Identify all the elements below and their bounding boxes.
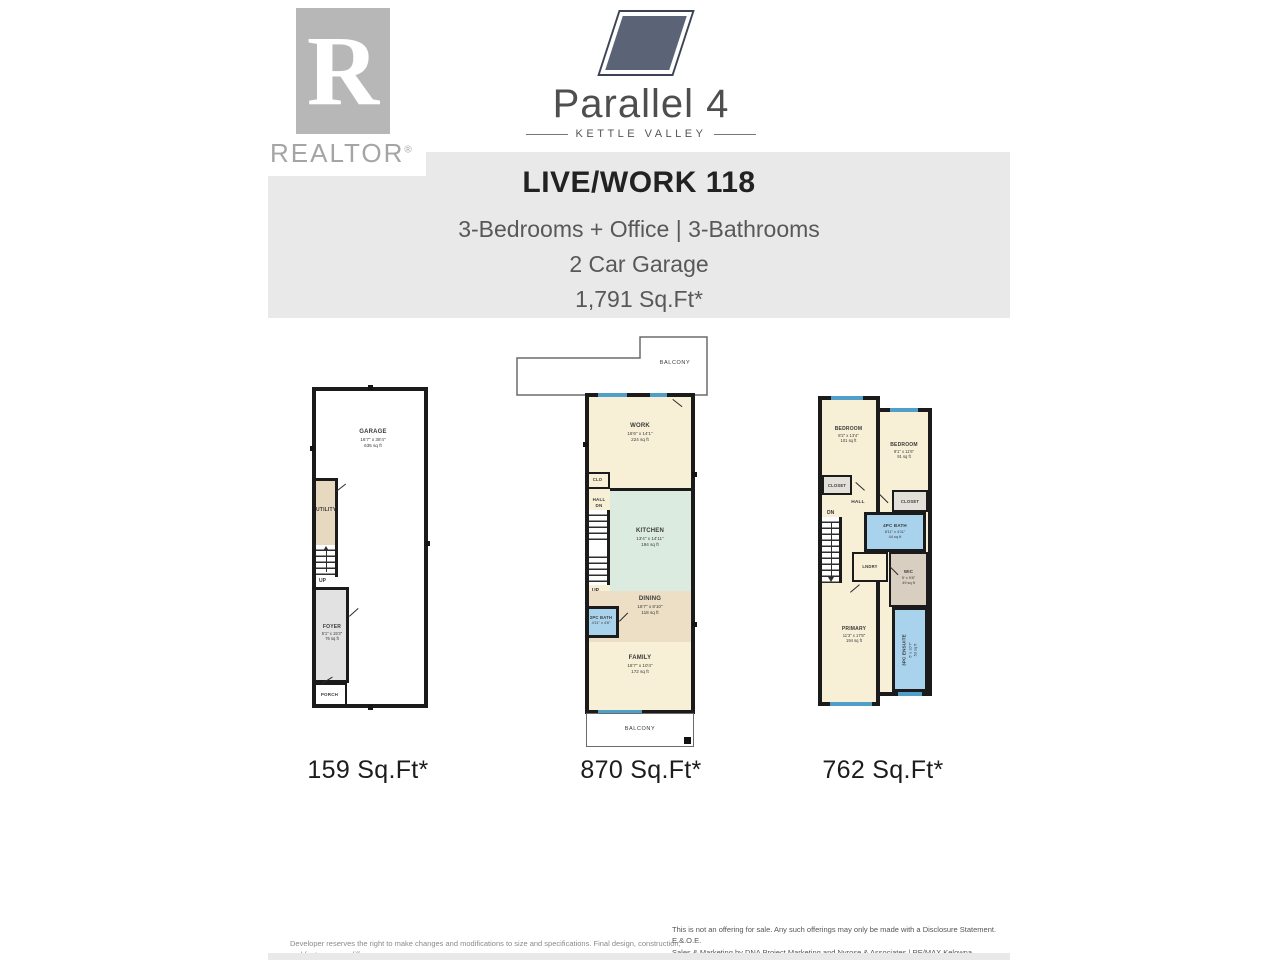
balcony-outline-top <box>516 336 709 396</box>
left-rule <box>526 134 568 135</box>
realtor-r-icon: R <box>296 8 390 134</box>
stair-arrow <box>326 550 328 572</box>
balcony-bottom-label: BALCONY <box>587 726 693 732</box>
ensuite-label: 3PC ENSUITE 5' x 10'7" 53 sq ft <box>902 610 919 690</box>
floorplan-main-level: WORK 16'6" x 14'1" 224 sq ft CLO HALL DN… <box>585 393 695 714</box>
wall-tick <box>425 541 430 546</box>
room-closet-left: CLOSET <box>822 475 852 495</box>
door-swing <box>349 608 359 617</box>
stair-direction-label: UP <box>319 578 326 584</box>
window <box>598 393 627 397</box>
community-name: KETTLE VALLEY <box>511 128 771 140</box>
wall-tick <box>368 385 373 390</box>
stairs-down <box>822 517 842 583</box>
window <box>898 692 922 696</box>
registered-mark: ® <box>404 144 413 155</box>
stairs-main <box>589 510 610 585</box>
room-work: WORK 16'6" x 14'1" 224 sq ft <box>599 423 681 444</box>
room-kitchen: KITCHEN 13'4" x 14'11" 194 sq ft <box>610 488 691 591</box>
project-name: Parallel 4 <box>511 82 771 127</box>
right-rule <box>714 134 756 135</box>
room-bedroom-right: BEDROOM 8'1" x 11'6" 91 sq ft <box>878 442 930 460</box>
window <box>890 408 918 412</box>
flyer-page: LIVE/WORK 118 3-Bedrooms + Office | 3-Ba… <box>0 0 1280 960</box>
balcony-top-label: BALCONY <box>640 360 710 366</box>
bottom-strip <box>268 953 1010 960</box>
footprint-label-upper: 762 Sq.Ft* <box>813 756 953 785</box>
corner-post <box>684 737 691 744</box>
room-closet-right: CLOSET <box>892 490 928 512</box>
balcony-bottom: BALCONY <box>586 713 694 747</box>
room-hall-upper: HALL <box>840 500 876 506</box>
wall-tick <box>692 472 697 477</box>
stair-arrow <box>831 522 833 578</box>
wall-tick <box>583 442 588 447</box>
wall-tick <box>368 705 373 710</box>
room-porch: PORCH <box>316 683 347 704</box>
garage-spec: 2 Car Garage <box>268 247 1010 282</box>
footprint-label-garage: 159 Sq.Ft* <box>298 756 438 785</box>
parallelogram-icon <box>608 10 684 76</box>
header-block: LIVE/WORK 118 3-Bedrooms + Office | 3-Ba… <box>268 152 1010 318</box>
unit-specs: 3-Bedrooms + Office | 3-Bathrooms <box>268 212 1010 247</box>
room-2pc-bath: 2PC BATH 4'11" x 4'6" <box>589 606 619 638</box>
room-foyer: FOYER 5'1" x 15'3" 76 sq ft <box>316 587 349 683</box>
window <box>830 702 872 706</box>
floorplan-upper-level: BEDROOM 8'2" x 13'4" 101 sq ft BEDROOM 8… <box>818 396 932 708</box>
room-family: FAMILY 16'7" x 10'4" 172 sq ft <box>600 655 680 676</box>
window <box>650 393 667 397</box>
room-primary: PRIMARY 11'3" x 17'8" 194 sq ft <box>826 626 882 644</box>
floorplan-garage-level: GARAGE 16'7" x 38'4" 635 sq ft UTILITY U… <box>312 387 428 708</box>
room-laundry: LNDRY <box>852 552 888 582</box>
total-area: 1,791 Sq.Ft* <box>268 282 1010 317</box>
room-utility: UTILITY <box>316 478 338 545</box>
room-4pc-bath: 4PC BATH 8'11" x 4'11" 44 sq ft <box>864 512 926 552</box>
door-swing <box>672 399 682 407</box>
window <box>831 396 863 400</box>
room-3pc-ensuite: 3PC ENSUITE 5' x 10'7" 53 sq ft <box>892 607 928 692</box>
room-hall: HALL DN <box>589 497 609 509</box>
wall-tick <box>692 622 697 627</box>
footprint-label-main: 870 Sq.Ft* <box>571 756 711 785</box>
wall-tick <box>310 446 315 451</box>
stair-direction-label: DN <box>827 510 834 516</box>
realtor-logo: R REALTOR® <box>268 0 426 176</box>
room-bedroom-left: BEDROOM 8'2" x 13'4" 101 sq ft <box>821 426 876 444</box>
room-clo: CLO <box>589 472 610 489</box>
room-wic: WIC 5' x 9'8" 49 sq ft <box>889 552 928 607</box>
stairs-up <box>316 545 338 577</box>
room-garage: GARAGE 16'7" x 38'4" 635 sq ft <box>332 429 414 450</box>
realtor-wordmark: REALTOR® <box>270 138 426 169</box>
